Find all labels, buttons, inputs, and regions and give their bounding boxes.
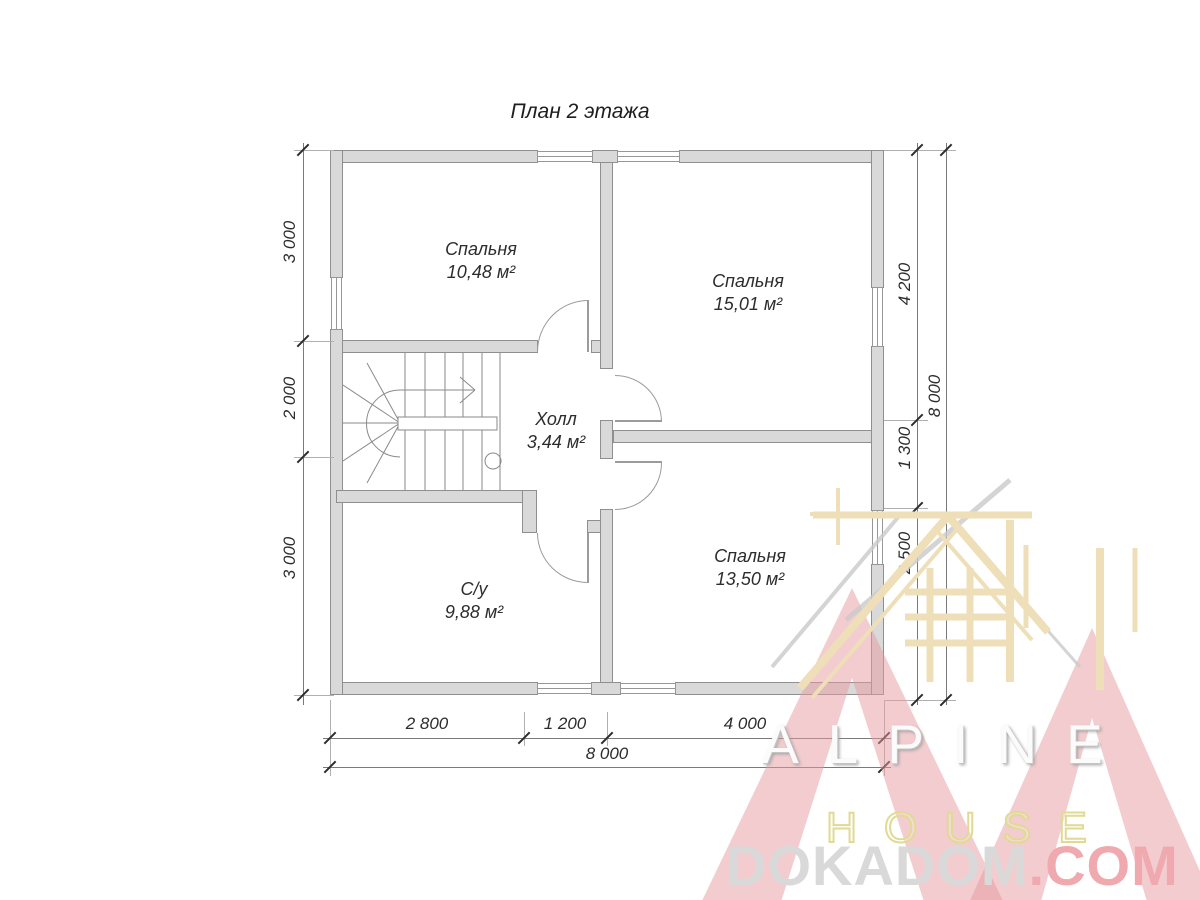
dimension-label: 8 000 xyxy=(567,744,647,764)
wall-segment xyxy=(336,490,524,503)
door-arc xyxy=(537,533,588,583)
dimension-label: 2 000 xyxy=(280,368,300,428)
dimension-label: 4 000 xyxy=(705,714,785,734)
floor-plan-page: План 2 этажа xyxy=(0,0,1200,900)
watermark-brand-bottom: HOUSE xyxy=(826,804,1114,853)
wall-segment xyxy=(330,329,343,695)
dimension-line xyxy=(946,143,947,705)
room-area: 13,50 м² xyxy=(660,568,840,591)
extension-line xyxy=(607,712,608,746)
door-leaf xyxy=(587,533,589,583)
logo-timber-frame xyxy=(800,488,1135,698)
room-area: 10,48 м² xyxy=(391,261,571,284)
room-area: 15,01 м² xyxy=(658,293,838,316)
dimension-line xyxy=(323,767,891,768)
dimension-label: 1 300 xyxy=(895,418,915,478)
wall-segment xyxy=(522,490,537,533)
wall-segment xyxy=(871,346,884,511)
room-name: Холл xyxy=(476,408,636,431)
dimension-label: 3 000 xyxy=(280,528,300,588)
room-label: Спальня 10,48 м² xyxy=(391,238,571,284)
window-symbol xyxy=(537,683,592,694)
dimension-label: 2 800 xyxy=(387,714,467,734)
wall-segment xyxy=(591,340,601,353)
room-label: Спальня 15,01 м² xyxy=(658,270,838,316)
wall-segment xyxy=(871,564,884,695)
wall-segment xyxy=(600,162,613,369)
room-name: Спальня xyxy=(391,238,571,261)
wall-segment xyxy=(679,150,884,163)
door-arc xyxy=(537,300,588,352)
wall-segment xyxy=(330,150,538,163)
window-symbol xyxy=(617,151,680,162)
window-symbol xyxy=(872,510,883,565)
logo-pink-peaks xyxy=(700,588,1200,900)
room-label: Холл 3,44 м² xyxy=(476,408,636,454)
wall-segment xyxy=(330,682,538,695)
site-name: DOKADOM xyxy=(726,834,1029,897)
dimension-label: 8 000 xyxy=(925,366,945,426)
wall-segment xyxy=(600,509,613,683)
wall-segment xyxy=(591,682,621,695)
wall-segment xyxy=(330,150,343,278)
dimension-label: 3 000 xyxy=(280,212,300,272)
room-label: С/у 9,88 м² xyxy=(384,578,564,624)
wall-segment xyxy=(587,520,601,533)
wall-segment xyxy=(871,150,884,288)
door-arc xyxy=(615,463,662,510)
door-leaf xyxy=(587,300,589,352)
dimension-line xyxy=(917,143,918,705)
dimension-label: 4 200 xyxy=(895,254,915,314)
wall-segment xyxy=(613,430,872,443)
room-name: Спальня xyxy=(658,270,838,293)
room-area: 9,88 м² xyxy=(384,601,564,624)
window-symbol xyxy=(331,277,342,330)
window-symbol xyxy=(537,151,593,162)
room-area: 3,44 м² xyxy=(476,431,636,454)
dimension-label: 1 200 xyxy=(525,714,605,734)
wall-segment xyxy=(342,340,538,353)
room-name: С/у xyxy=(384,578,564,601)
watermark-site-url: DOKADOM.COM xyxy=(726,833,1179,898)
page-title: План 2 этажа xyxy=(455,100,705,124)
window-symbol xyxy=(872,287,883,347)
dimension-label: 2 500 xyxy=(895,523,915,583)
door-leaf xyxy=(615,461,662,463)
extension-line xyxy=(884,508,928,509)
room-name: Спальня xyxy=(660,545,840,568)
room-label: Спальня 13,50 м² xyxy=(660,545,840,591)
window-symbol xyxy=(620,683,676,694)
site-tld: .COM xyxy=(1029,834,1179,897)
dimension-line xyxy=(303,143,304,705)
wall-segment xyxy=(675,682,884,695)
